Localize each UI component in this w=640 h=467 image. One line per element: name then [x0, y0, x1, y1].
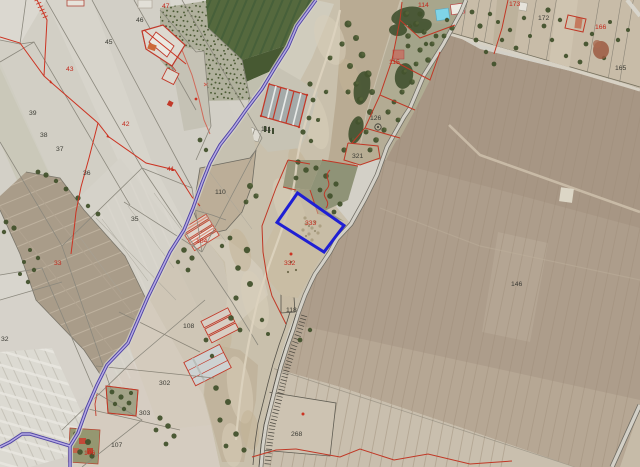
svg-text:43: 43 [66, 66, 74, 73]
svg-text:114: 114 [418, 2, 429, 9]
svg-text:106: 106 [84, 450, 96, 457]
svg-text:303: 303 [139, 410, 151, 417]
svg-text:46: 46 [136, 17, 144, 24]
svg-text:37: 37 [56, 146, 64, 153]
svg-text:173: 173 [509, 1, 521, 8]
svg-text:32: 32 [1, 336, 9, 343]
svg-text:321: 321 [352, 153, 364, 160]
svg-text:45: 45 [105, 39, 113, 46]
svg-text:33: 33 [54, 260, 62, 267]
svg-text:268: 268 [291, 431, 303, 438]
svg-text:126: 126 [370, 115, 382, 122]
svg-text:165: 165 [615, 65, 627, 72]
svg-text:172: 172 [538, 15, 550, 22]
svg-text:146: 146 [511, 281, 523, 288]
svg-text:42: 42 [122, 121, 130, 128]
svg-text:39: 39 [29, 110, 37, 117]
svg-text:333: 333 [305, 220, 317, 227]
svg-text:47: 47 [162, 3, 170, 10]
svg-text:36: 36 [83, 170, 91, 177]
svg-text:108: 108 [183, 323, 195, 330]
svg-text:35: 35 [131, 216, 139, 223]
svg-text:41: 41 [167, 166, 175, 173]
svg-text:118: 118 [286, 307, 297, 314]
svg-text:38: 38 [40, 132, 48, 139]
svg-text:111: 111 [261, 126, 272, 133]
svg-text:166: 166 [595, 24, 607, 31]
svg-text:115: 115 [389, 59, 400, 66]
svg-text:302: 302 [159, 380, 171, 387]
svg-text:107: 107 [111, 442, 123, 449]
svg-text:332: 332 [284, 260, 296, 267]
svg-text:110: 110 [215, 189, 226, 196]
svg-text:104: 104 [196, 238, 208, 245]
